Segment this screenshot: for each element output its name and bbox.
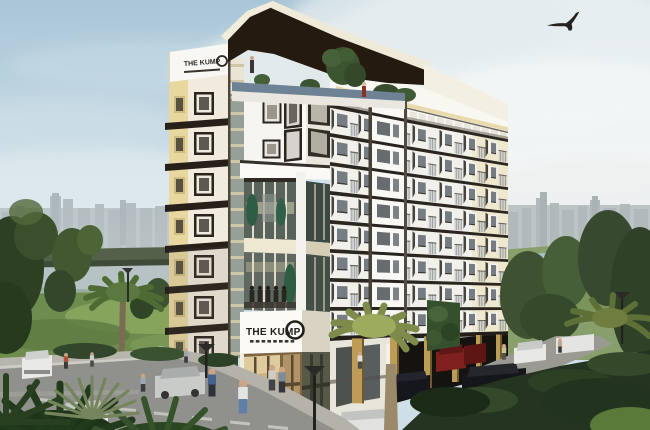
- svg-text:THE KUMP: THE KUMP: [246, 327, 301, 338]
